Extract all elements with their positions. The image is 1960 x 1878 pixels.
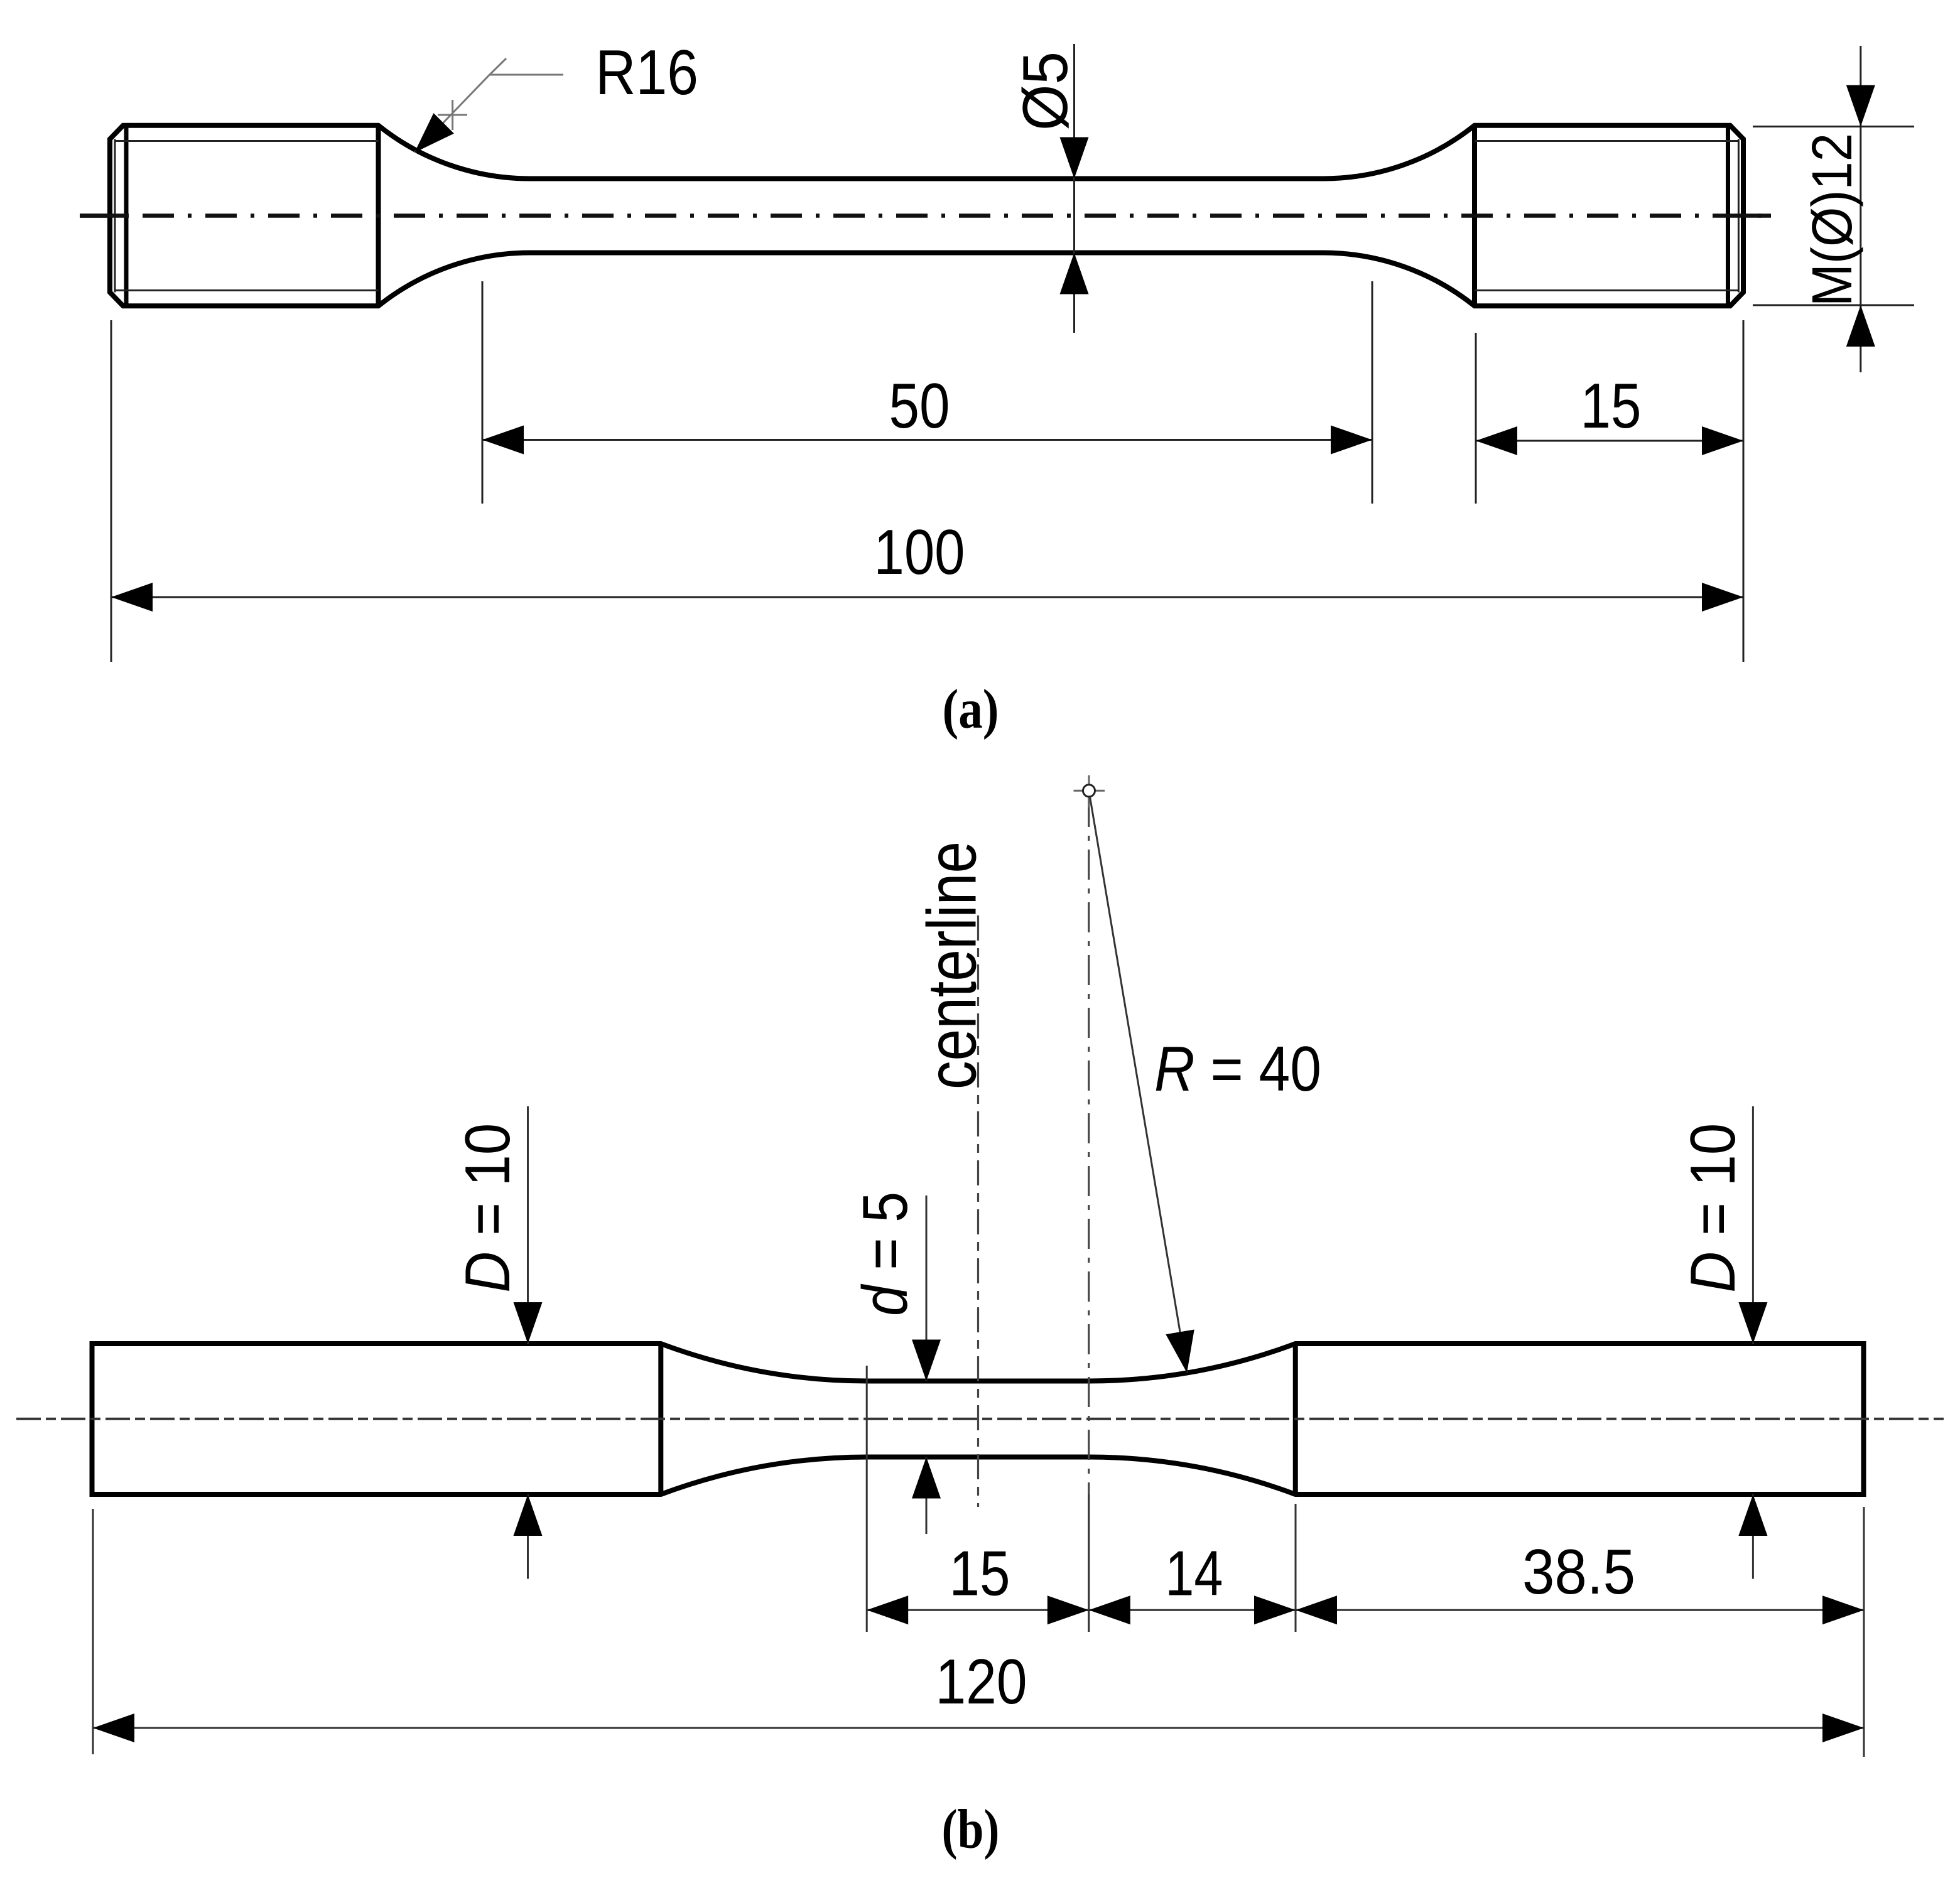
svg-text:38.5: 38.5 [1522,1537,1635,1607]
svg-text:R = 40: R = 40 [1154,1034,1321,1104]
svg-text:100: 100 [874,517,965,588]
svg-text:D = 10: D = 10 [1678,1123,1748,1293]
svg-text:15: 15 [1581,371,1642,441]
svg-text:120: 120 [936,1647,1027,1717]
svg-text:14: 14 [1165,1538,1223,1609]
svg-text:15: 15 [950,1538,1010,1609]
svg-text:d = 5: d = 5 [850,1192,921,1316]
svg-text:(a): (a) [943,679,999,740]
svg-text:M(Ø)12: M(Ø)12 [1801,133,1864,306]
svg-text:D = 10: D = 10 [453,1123,523,1293]
svg-text:(b): (b) [942,1799,1000,1860]
svg-text:50: 50 [889,371,950,441]
svg-text:R16: R16 [595,38,698,108]
svg-text:Ø5: Ø5 [1010,51,1081,131]
